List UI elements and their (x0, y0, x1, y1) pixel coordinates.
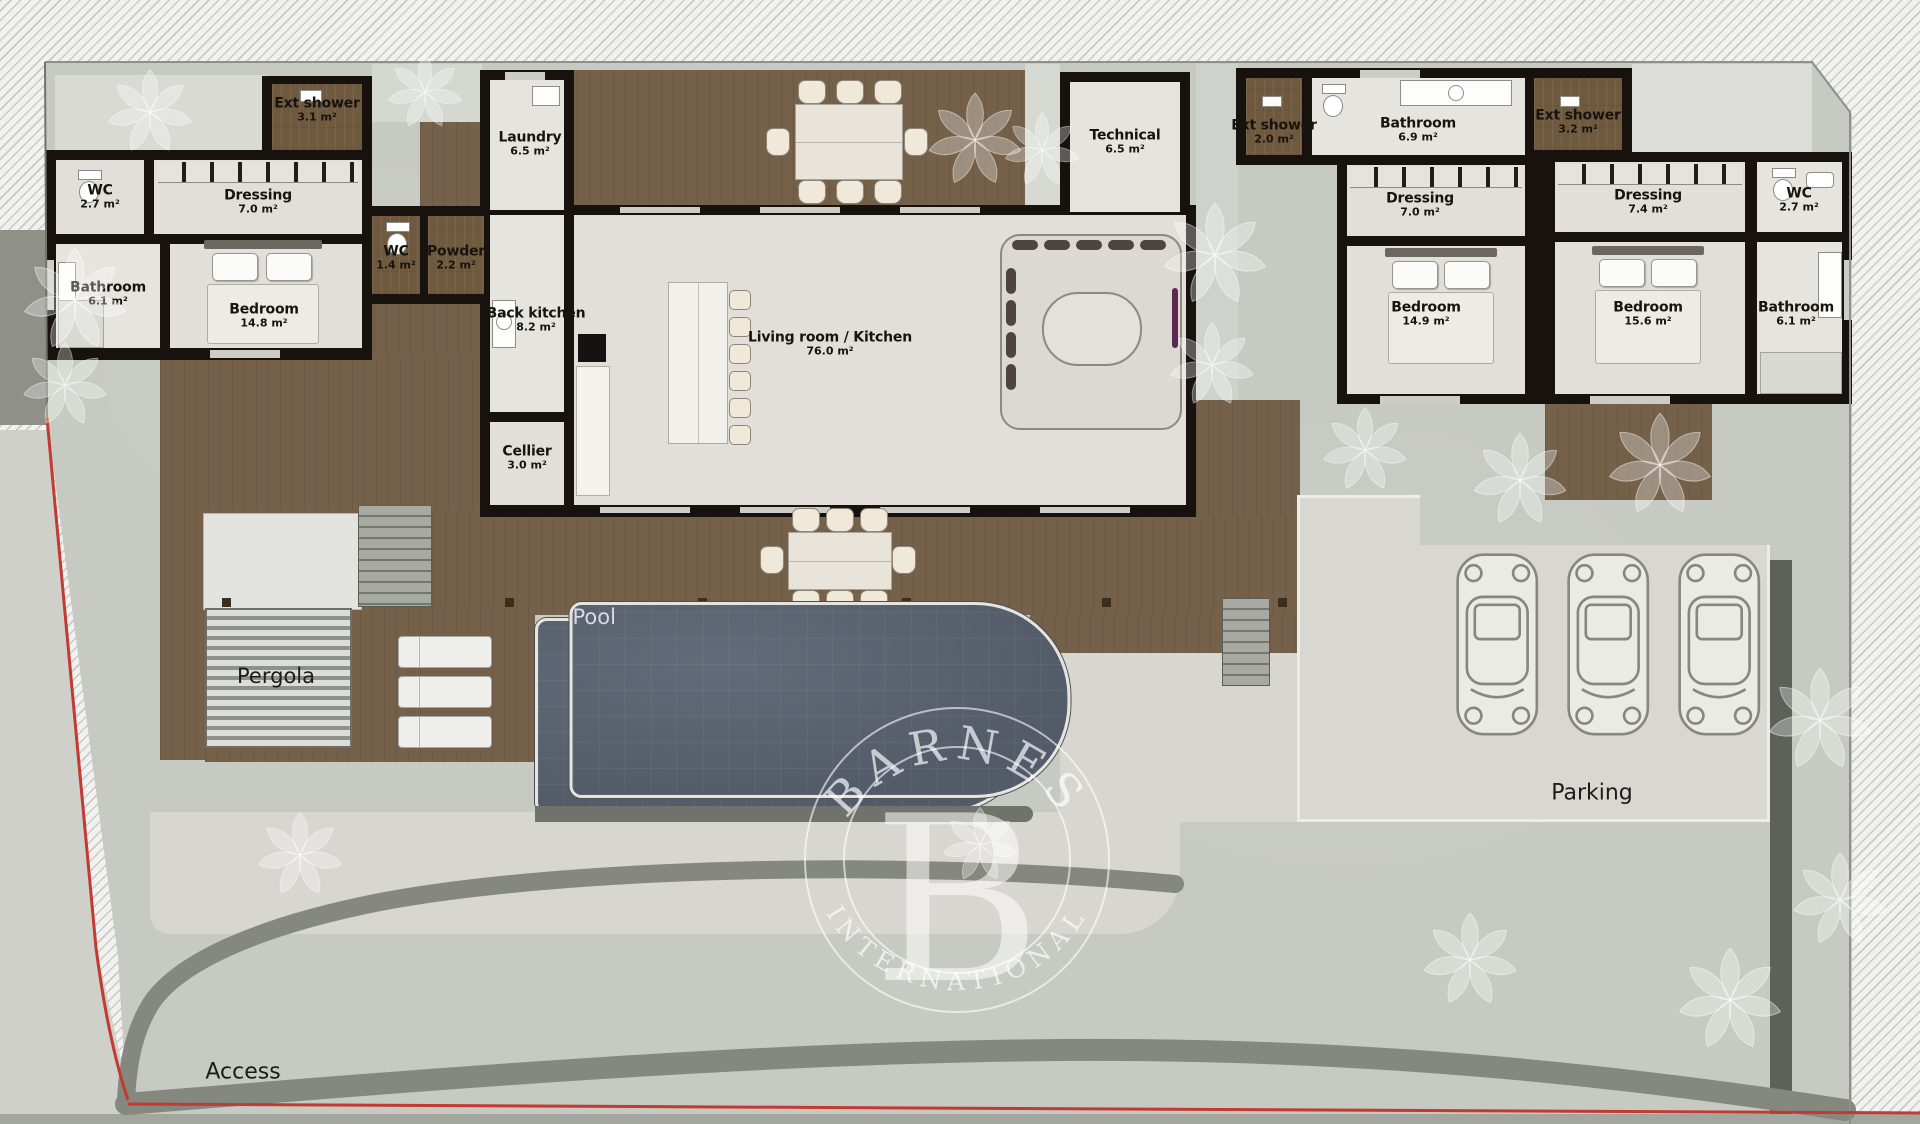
dining-chair (826, 508, 854, 532)
garden-patch (1196, 64, 1238, 410)
bar-stool (729, 371, 751, 391)
garden-patch (55, 75, 268, 153)
dining-chair (798, 180, 826, 204)
window (760, 207, 840, 213)
hall-deck (362, 300, 490, 360)
east-deck (1196, 400, 1300, 515)
room-area: 6.1 m² (1776, 316, 1816, 328)
lower-terrace (150, 812, 1180, 934)
room-name: Dressing (1614, 189, 1682, 204)
room-name: Dressing (224, 189, 292, 204)
room-name: Dressing (1386, 192, 1454, 207)
room-label-dressing-3: Dressing 7.4 m² (1614, 189, 1682, 216)
access-label: Access (205, 1060, 280, 1085)
room-label-wc-right: WC 2.7 m² (1779, 187, 1819, 214)
closet (1350, 167, 1522, 188)
sun-lounger (398, 716, 492, 748)
room-area: 6.1 m² (88, 296, 128, 308)
sliding-door (880, 507, 970, 513)
window (210, 350, 280, 358)
room-name: Bathroom (1380, 117, 1456, 132)
parking-steps (1222, 598, 1270, 686)
room-label-technical: Technical 6.5 m² (1090, 129, 1161, 156)
patio (203, 513, 362, 610)
dining-chair (860, 508, 888, 532)
room-label-ext-shower-left: Ext shower 3.1 m² (274, 97, 359, 124)
window (46, 260, 54, 310)
room-label-bathroom-2: Bathroom 6.9 m² (1380, 117, 1456, 144)
dining-table (788, 532, 892, 590)
stove (578, 334, 606, 362)
room-label-wc-mid: WC 1.4 m² (376, 245, 416, 272)
room-label-bedroom-3: Bedroom 15.6 m² (1613, 301, 1683, 328)
window (1380, 396, 1460, 404)
room-area: 2.0 m² (1254, 134, 1294, 146)
dining-chair (904, 128, 928, 156)
west-deck-rim (160, 510, 205, 760)
sofa-cushion (1076, 240, 1102, 250)
parking-label: Parking (1551, 781, 1633, 806)
room-area: 3.0 m² (507, 460, 547, 472)
bed (204, 240, 322, 346)
room-label-ext-shower-3: Ext shower 3.2 m² (1535, 109, 1620, 136)
room-label-powder: Powder 2.2 m² (427, 245, 485, 272)
pool-stone-band (535, 806, 1033, 822)
shower-head-icon (1560, 96, 1580, 107)
dining-chair (760, 546, 784, 574)
room-label-bathroom-3: Bathroom 6.1 m² (1758, 301, 1834, 328)
room-area: 7.0 m² (238, 204, 278, 216)
bar-stool (729, 425, 751, 445)
dining-chair (836, 80, 864, 104)
window (620, 207, 700, 213)
sun-lounger (398, 676, 492, 708)
tv-unit (1172, 288, 1178, 348)
sofa-cushion (1006, 332, 1016, 358)
window (1844, 260, 1852, 320)
room-area: 6.9 m² (1398, 132, 1438, 144)
pergola-label: Pergola (237, 664, 315, 688)
boundary-wall (1770, 560, 1792, 1124)
room-area: 3.1 m² (297, 112, 337, 124)
room-name: WC (1786, 187, 1811, 202)
room-name: Bedroom (1613, 301, 1683, 316)
dining-chair (874, 80, 902, 104)
dining-table (795, 104, 903, 180)
room-name: Bathroom (70, 281, 146, 296)
room-area: 7.4 m² (1628, 204, 1668, 216)
room-name: Back kitchen (487, 307, 586, 322)
sofa-cushion (1012, 240, 1038, 250)
dining-chair (836, 180, 864, 204)
room-area: 14.9 m² (1402, 316, 1449, 328)
sofa-cushion (1006, 300, 1016, 326)
bar-stool (729, 398, 751, 418)
window (900, 207, 980, 213)
bar-stool (729, 290, 751, 310)
dining-chair (798, 80, 826, 104)
dining-chair (892, 546, 916, 574)
right-wing-deck (1545, 402, 1712, 500)
dining-chair (874, 180, 902, 204)
room-area: 15.6 m² (1624, 316, 1671, 328)
room-label-dressing-left: Dressing 7.0 m² (224, 189, 292, 216)
room-label-back-kitchen: Back kitchen 8.2 m² (487, 307, 586, 334)
toilet-icon (1322, 84, 1344, 117)
room-label-cellier: Cellier 3.0 m² (502, 445, 551, 472)
room-label-bedroom-left: Bedroom 14.8 m² (229, 303, 299, 330)
closet (158, 162, 358, 183)
sofa-cushion (1006, 364, 1016, 390)
room-area: 6.5 m² (510, 146, 550, 158)
sofa-cushion (1108, 240, 1134, 250)
room-name: Ext shower (1231, 119, 1316, 134)
room-name: Laundry (499, 131, 562, 146)
coffee-table (1042, 292, 1142, 366)
room-area: 8.2 m² (516, 322, 556, 334)
sofa-cushion (1044, 240, 1070, 250)
garden-patch (372, 64, 482, 122)
entry-deck (420, 122, 482, 215)
pool-label: Pool (570, 602, 1071, 798)
room-area: 3.2 m² (1558, 124, 1598, 136)
room-area: 76.0 m² (806, 346, 853, 358)
laundry-sink (532, 86, 560, 106)
shower-head-icon (1262, 96, 1282, 107)
fence-post (222, 598, 231, 607)
fence-post (1102, 598, 1111, 607)
shower (1760, 352, 1842, 394)
fence-post (505, 598, 514, 607)
sliding-door (600, 507, 690, 513)
room-label-living-kitchen: Living room / Kitchen 76.0 m² (748, 331, 912, 358)
washbasin (1448, 85, 1464, 101)
room-area: 2.7 m² (80, 199, 120, 211)
floor-plan-canvas: Ext shower 3.1 m² WC 2.7 m² Dressing 7.0… (0, 0, 1920, 1124)
sun-lounger (398, 636, 492, 668)
sofa-cushion (1140, 240, 1166, 250)
room-area: 14.8 m² (240, 318, 287, 330)
room-name: Ext shower (274, 97, 359, 112)
room-name: Bathroom (1758, 301, 1834, 316)
room-label-ext-shower-2: Ext shower 2.0 m² (1231, 119, 1316, 146)
garden-patch (1632, 64, 1812, 152)
room-name: Bedroom (1391, 301, 1461, 316)
room-area: 7.0 m² (1400, 207, 1440, 219)
stairs (358, 505, 432, 607)
sofa-cushion (1006, 268, 1016, 294)
room-name: Cellier (502, 445, 551, 460)
room-area: 1.4 m² (376, 260, 416, 272)
room-area: 2.7 m² (1779, 202, 1819, 214)
left-road-strip (0, 230, 52, 425)
room-name: Ext shower (1535, 109, 1620, 124)
dining-chair (766, 128, 790, 156)
fence-post (1278, 598, 1287, 607)
room-label-dressing-2: Dressing 7.0 m² (1386, 192, 1454, 219)
room-name: WC (383, 245, 408, 260)
room-label-laundry: Laundry 6.5 m² (499, 131, 562, 158)
dining-chair (792, 508, 820, 532)
closet (1558, 164, 1742, 185)
room-area: 2.2 m² (436, 260, 476, 272)
room-name: Powder (427, 245, 485, 260)
room-name: WC (87, 184, 112, 199)
window (1590, 396, 1670, 404)
window (1360, 70, 1420, 78)
window (505, 72, 545, 80)
kitchen-island (668, 282, 728, 444)
sliding-door (1040, 507, 1130, 513)
room-area: 6.5 m² (1105, 144, 1145, 156)
room-label-wc-left: WC 2.7 m² (80, 184, 120, 211)
room-label-bedroom-2: Bedroom 14.9 m² (1391, 301, 1461, 328)
room-name: Living room / Kitchen (748, 331, 912, 346)
kitchen-counter (576, 366, 610, 496)
room-label-bathroom-left: Bathroom 6.1 m² (70, 281, 146, 308)
garden-patch (1025, 64, 1060, 224)
room-name: Bedroom (229, 303, 299, 318)
bottom-road-band (0, 1114, 1920, 1124)
room-name: Technical (1090, 129, 1161, 144)
